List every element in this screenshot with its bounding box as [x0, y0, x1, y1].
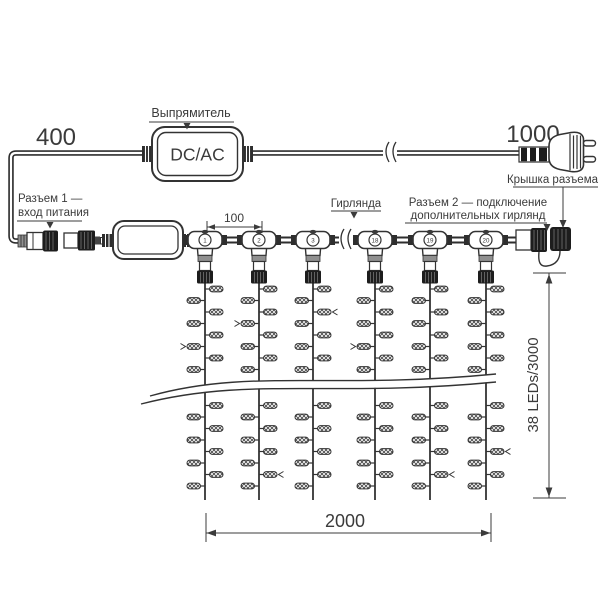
led — [210, 426, 224, 432]
rectifier-label: Выпрямитель — [151, 106, 230, 120]
string-plug — [200, 262, 211, 271]
led — [357, 460, 371, 466]
led — [318, 286, 332, 292]
string-collar — [423, 256, 437, 262]
string-collar — [306, 256, 320, 262]
led — [187, 344, 201, 350]
led — [357, 483, 371, 489]
junction-screw — [310, 230, 317, 234]
led — [187, 483, 201, 489]
led — [241, 460, 255, 466]
junction-screw — [372, 230, 379, 234]
led — [380, 309, 394, 315]
led — [318, 403, 332, 409]
led — [264, 426, 278, 432]
led — [435, 403, 449, 409]
connector2-plug — [516, 230, 531, 250]
junction-number: 3 — [311, 237, 315, 244]
dim-2000: 2000 — [325, 511, 365, 531]
connector2-nut — [531, 228, 547, 252]
led-string-6 — [468, 280, 504, 500]
chevron-mark — [181, 344, 186, 350]
string-plug — [425, 262, 436, 271]
string-nut — [367, 271, 383, 284]
junction-2: 2 — [237, 230, 281, 284]
connector2-cap — [550, 227, 571, 251]
connector1-label-line1: Разъем 1 — — [18, 193, 83, 205]
led — [318, 332, 332, 338]
led — [210, 309, 224, 315]
string-plug — [254, 262, 265, 271]
connector2-label-line1: Разъем 2 — подключение — [409, 197, 547, 209]
led — [264, 309, 278, 315]
led — [187, 367, 201, 373]
chevron-mark — [351, 344, 356, 350]
chevron-mark — [450, 472, 455, 478]
led — [468, 414, 482, 420]
led — [412, 437, 426, 443]
string-collar — [368, 256, 382, 262]
plug-pin — [584, 157, 596, 163]
led — [491, 426, 505, 432]
plug-pin — [584, 141, 596, 147]
connector1-label-line2: вход питания — [18, 207, 89, 219]
led — [210, 403, 224, 409]
garland-label-group: Гирлянда — [331, 198, 382, 219]
led — [264, 403, 278, 409]
string-break-curve — [141, 374, 496, 404]
led — [491, 403, 505, 409]
led — [412, 460, 426, 466]
led — [468, 298, 482, 304]
led — [491, 332, 505, 338]
led — [241, 321, 255, 327]
string-nut — [251, 271, 267, 284]
led — [241, 367, 255, 373]
dimension-38leds-3000: 38 LEDs/3000 — [525, 273, 566, 498]
connector1-cap — [43, 231, 58, 252]
led — [468, 321, 482, 327]
chevron-mark — [279, 472, 284, 478]
led — [468, 437, 482, 443]
junction-3: 3 — [291, 230, 335, 284]
led — [264, 332, 278, 338]
led — [380, 449, 394, 455]
junction-1: 1 — [183, 230, 227, 284]
led — [491, 449, 505, 455]
controller-box — [102, 221, 193, 259]
led — [295, 437, 309, 443]
junction-number: 20 — [483, 237, 490, 244]
led — [318, 426, 332, 432]
rectifier-box: DC/AC Выпрямитель — [142, 106, 253, 181]
led — [491, 355, 505, 361]
garland-label: Гирлянда — [331, 198, 382, 210]
led — [210, 332, 224, 338]
led — [357, 367, 371, 373]
led — [357, 437, 371, 443]
arrow-down-icon — [47, 222, 54, 229]
led — [187, 460, 201, 466]
cable-nub — [102, 234, 113, 247]
led — [357, 414, 371, 420]
dim-100: 100 — [224, 211, 244, 225]
led — [187, 298, 201, 304]
led — [295, 483, 309, 489]
junction-number: 2 — [257, 237, 261, 244]
led — [241, 298, 255, 304]
led — [187, 437, 201, 443]
connector1-nut — [78, 231, 95, 251]
led — [295, 414, 309, 420]
led — [468, 367, 482, 373]
led — [295, 344, 309, 350]
cable-nub — [243, 146, 253, 162]
led — [357, 344, 371, 350]
dim-400: 400 — [36, 124, 76, 151]
plug-body — [549, 132, 584, 171]
led — [491, 472, 505, 478]
led — [264, 449, 278, 455]
led — [187, 414, 201, 420]
led — [468, 344, 482, 350]
led — [210, 286, 224, 292]
connector1-ferrule — [18, 235, 27, 247]
led-curtain-diagram: 400 1000 DC/AC Выпрямитель — [0, 0, 600, 600]
string-nut — [305, 271, 321, 284]
led — [357, 298, 371, 304]
arrow-down-icon — [560, 220, 567, 228]
led — [412, 298, 426, 304]
connector2-label-line2: дополнительных гирлянд — [411, 210, 546, 222]
cap-label: Крышка разъема — [507, 174, 599, 186]
led — [264, 472, 278, 478]
led — [318, 449, 332, 455]
diagram-root: 400 1000 DC/AC Выпрямитель — [0, 0, 600, 600]
chevron-mark — [333, 309, 338, 315]
led — [435, 355, 449, 361]
string-nut — [478, 271, 494, 284]
led — [187, 321, 201, 327]
arrow-down-icon — [351, 212, 358, 219]
connector1-assembly: Разъем 1 — вход питания — [17, 193, 108, 252]
led — [491, 286, 505, 292]
string-collar — [198, 256, 212, 262]
led — [295, 298, 309, 304]
junction-screw — [483, 230, 490, 234]
led — [435, 449, 449, 455]
led — [412, 321, 426, 327]
led — [295, 321, 309, 327]
led — [380, 286, 394, 292]
string-collar — [252, 256, 266, 262]
led — [380, 472, 394, 478]
led — [435, 309, 449, 315]
led — [357, 321, 371, 327]
led — [241, 483, 255, 489]
chevron-mark — [235, 321, 240, 327]
cable-nub — [142, 146, 152, 162]
string-nut — [197, 271, 213, 284]
led — [491, 309, 505, 315]
junction-number: 18 — [372, 237, 379, 244]
led — [435, 332, 449, 338]
led-string-4 — [357, 280, 393, 500]
led — [318, 355, 332, 361]
junction-number: 1 — [203, 237, 207, 244]
cable-break-icon — [339, 229, 353, 250]
led — [241, 437, 255, 443]
junction-screw — [256, 230, 263, 234]
chevron-mark — [506, 449, 511, 455]
led — [295, 367, 309, 373]
led — [380, 403, 394, 409]
dimension-2000: 2000 — [206, 511, 491, 542]
led — [412, 483, 426, 489]
led — [318, 309, 332, 315]
cable-break-icon — [383, 142, 397, 163]
led — [295, 460, 309, 466]
led — [264, 286, 278, 292]
led — [264, 355, 278, 361]
led — [210, 449, 224, 455]
cap-tether — [539, 251, 560, 266]
led — [380, 332, 394, 338]
led — [435, 286, 449, 292]
led — [380, 426, 394, 432]
led — [210, 472, 224, 478]
dim-38leds: 38 LEDs/3000 — [525, 337, 542, 432]
junction-6: 20 — [464, 230, 508, 284]
dimension-100: 100 — [207, 211, 262, 233]
junction-screw — [427, 230, 434, 234]
led — [318, 472, 332, 478]
led — [210, 355, 224, 361]
led-string-5 — [412, 280, 448, 500]
led — [412, 344, 426, 350]
led-string-3 — [295, 280, 331, 500]
led — [241, 414, 255, 420]
led — [468, 460, 482, 466]
led — [380, 355, 394, 361]
led — [435, 472, 449, 478]
junction-4: 18 — [353, 230, 397, 284]
led — [435, 426, 449, 432]
dcac-label: DC/AC — [170, 145, 224, 165]
led — [241, 344, 255, 350]
led — [412, 367, 426, 373]
connector1-plug — [64, 233, 78, 248]
string-collar — [479, 256, 493, 262]
string-plug — [481, 262, 492, 271]
strain-relief — [519, 147, 549, 162]
led — [412, 414, 426, 420]
string-plug — [370, 262, 381, 271]
string-plug — [308, 262, 319, 271]
string-nut — [422, 271, 438, 284]
junction-5: 19 — [408, 230, 452, 284]
junction-number: 19 — [427, 237, 434, 244]
connector1-socket — [27, 233, 43, 250]
led — [468, 483, 482, 489]
